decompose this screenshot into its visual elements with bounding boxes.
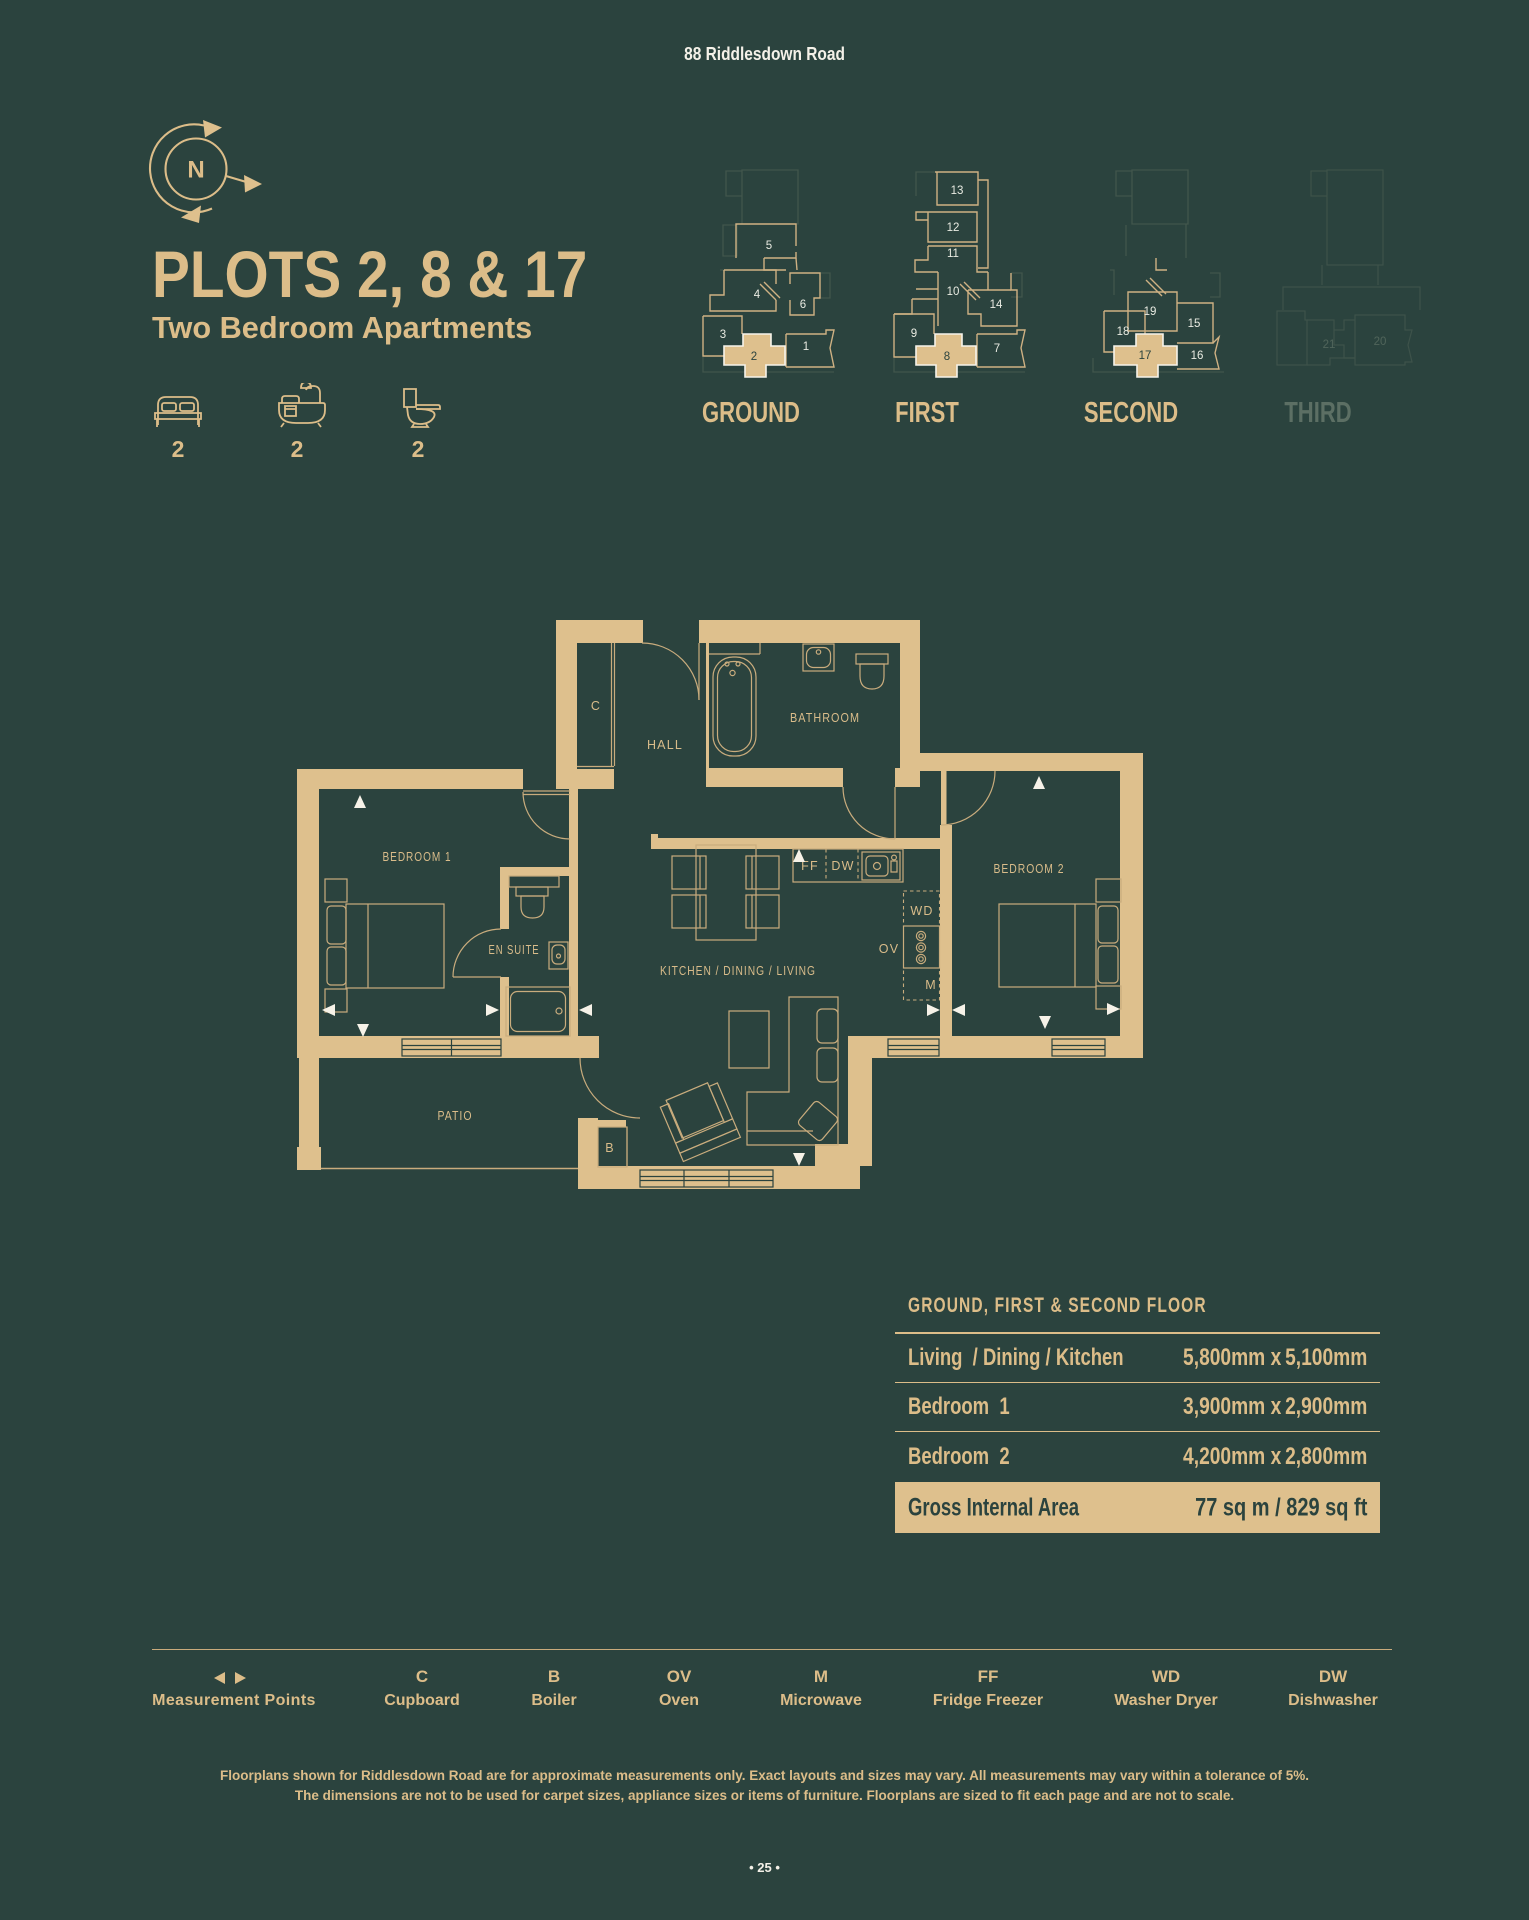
svg-text:N: N — [187, 157, 204, 184]
svg-text:DW: DW — [831, 859, 854, 873]
svg-text:21: 21 — [1323, 339, 1336, 351]
svg-text:BEDROOM 2: BEDROOM 2 — [994, 862, 1065, 876]
svg-text:M: M — [925, 978, 937, 992]
svg-text:HALL: HALL — [647, 738, 683, 752]
svg-text:OV: OV — [879, 942, 899, 956]
svg-text:20: 20 — [1374, 336, 1387, 348]
svg-text:18: 18 — [1117, 326, 1130, 338]
svg-text:11: 11 — [947, 248, 959, 260]
svg-text:3: 3 — [720, 329, 726, 341]
svg-text:C: C — [591, 699, 601, 713]
svg-text:WD: WD — [910, 904, 933, 918]
svg-text:16: 16 — [1191, 350, 1204, 362]
svg-text:2: 2 — [751, 351, 757, 363]
svg-text:8: 8 — [944, 351, 950, 363]
svg-text:13: 13 — [951, 185, 964, 197]
svg-text:19: 19 — [1144, 306, 1157, 318]
svg-text:EN SUITE: EN SUITE — [489, 943, 540, 957]
svg-text:BEDROOM 1: BEDROOM 1 — [383, 850, 452, 864]
svg-text:5: 5 — [766, 240, 772, 252]
svg-text:17: 17 — [1139, 350, 1152, 362]
svg-text:KITCHEN / DINING / LIVING: KITCHEN / DINING / LIVING — [660, 964, 816, 978]
svg-text:B: B — [605, 1141, 615, 1155]
svg-text:14: 14 — [990, 299, 1003, 311]
svg-text:9: 9 — [911, 328, 917, 340]
svg-text:4: 4 — [754, 289, 761, 301]
svg-text:6: 6 — [800, 299, 806, 311]
svg-text:BATHROOM: BATHROOM — [790, 711, 860, 725]
svg-text:1: 1 — [803, 341, 809, 353]
svg-text:10: 10 — [947, 286, 960, 298]
svg-text:15: 15 — [1188, 318, 1201, 330]
svg-text:12: 12 — [947, 222, 960, 234]
svg-text:PATIO: PATIO — [438, 1109, 473, 1123]
svg-text:7: 7 — [994, 343, 1000, 355]
